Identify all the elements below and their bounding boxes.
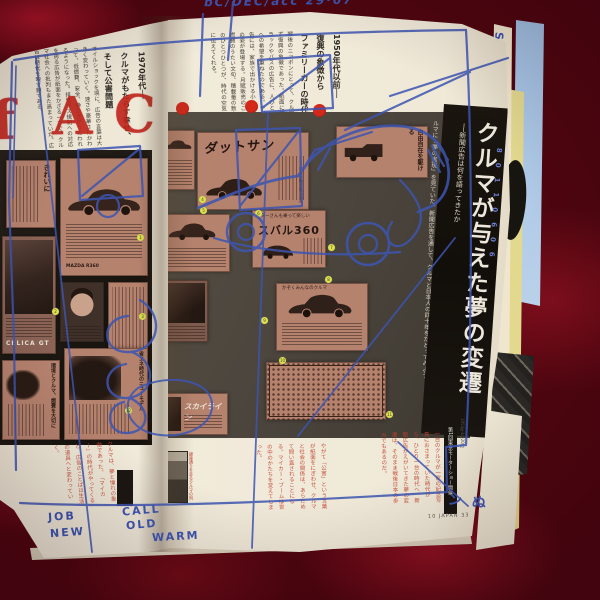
yellow-dot: 4 (199, 196, 206, 203)
mid-bottom-red-text: やがて「公害」という言葉が紙面をにぎわせ、クルマと社会の関係は、あらためて問い直… (195, 443, 328, 511)
yellow-dot: 9 (261, 317, 268, 324)
dot-number: 8 (327, 277, 330, 282)
ad-photo-area (5, 240, 53, 314)
ad-datsun-maker: 日産自動車株式会社 (298, 167, 304, 207)
ad-eco-left: 環境とクルマ、燃費を大切に (2, 360, 60, 440)
ad-subaru-lead: スターさんも乗って楽しい (256, 213, 310, 219)
ad-text-lines (163, 326, 205, 339)
yellow-dot: 2 (52, 308, 59, 315)
black-tab (117, 470, 133, 506)
handwritten-word-new: NEW (50, 525, 86, 540)
ad-kirei: きれいに (6, 160, 56, 228)
top-margin-note: bC/DEC/acc 29·07 (204, 0, 354, 9)
red-stamp-dot (176, 102, 189, 115)
red-stamp-dot (245, 100, 258, 113)
yellow-dot: 7 (328, 244, 335, 251)
red-stamp-dot (313, 104, 326, 117)
ad-kirei-title: きれいに (42, 164, 52, 192)
ad-text-lines (69, 404, 129, 434)
dot-number: 10 (280, 358, 285, 363)
right-bottom-red-text: 一台のクルマが一家の記念写真におさまっていた時代から、ひとり一台の時代へ。新聞広… (337, 431, 442, 507)
ad-text-lines (164, 248, 226, 268)
dot-number: 6 (257, 211, 260, 216)
left-clippings-panel: きれいに MAZDA R360 CELICA GT 環境とクルマ、燃費を大切に (0, 150, 152, 445)
yellow-dot: 10 (279, 357, 286, 364)
ad-text-lines (10, 166, 38, 222)
stencil-letter-a: A (51, 86, 92, 148)
ad-mazda-label: MAZDA R360 (66, 264, 99, 269)
ad-text-lines (66, 224, 142, 260)
stencil-letter-f: f (0, 88, 16, 153)
ad-eco-headline: 環境とクルマ、燃費を大切に (50, 363, 57, 435)
ad-mazda: MAZDA R360 (60, 158, 148, 276)
ad-eco-headline-b: 省エネ時代のニューモデル (138, 351, 145, 435)
yellow-dot: 6 (255, 210, 262, 217)
date-note: 1954年4月20日 (459, 418, 465, 464)
yellow-dot: 3 (139, 313, 146, 320)
ad-jiyu: 自由自在を駆ける (336, 126, 428, 178)
ad-eco-right: 省エネ時代のニューモデル (64, 348, 148, 440)
dot-number: 2 (54, 309, 57, 314)
ad-text-lines (302, 238, 322, 264)
dot-number: 4 (201, 197, 204, 202)
ad-datsun-title: ダットサン (204, 134, 276, 157)
yellow-dot: 1 (137, 234, 144, 241)
truck-illustration (342, 140, 388, 164)
ad-subaru-name: スバル360 (258, 222, 320, 238)
dot-number: 9 (263, 318, 266, 323)
handwritten-word-old: OLD (125, 517, 158, 533)
car-illustration (284, 291, 356, 319)
corner-char: ン (447, 489, 466, 511)
ad-photo-blob (69, 356, 121, 400)
dot-number: 3 (141, 314, 144, 319)
ad-text-lines (184, 415, 222, 429)
ad-celica-label: CELICA GT (6, 340, 50, 347)
yellow-dot: 5 (200, 207, 207, 214)
ad-text-lines (282, 323, 362, 347)
ad-celica: CELICA GT (2, 236, 56, 354)
dot-number: 11 (387, 412, 392, 417)
yellow-dot: 11 (386, 411, 393, 418)
subaru-car-illustration (260, 242, 296, 260)
ad-photo-blob (6, 370, 40, 400)
ad-sedan: かぞくみんなのクルマ (276, 283, 368, 351)
dot-number: 5 (202, 208, 205, 213)
dot-number: 12 (126, 408, 131, 413)
dot-number: 7 (330, 245, 333, 250)
stencil-letter-c: C (113, 83, 156, 145)
ad-subaru: スターさんも乗って楽しい スバル360 (252, 210, 326, 268)
car-illustration (64, 184, 144, 218)
page-footer: 10 JAPAN 33 (428, 512, 470, 519)
ad-text-lines (63, 326, 101, 339)
ad-cartoon (266, 362, 386, 420)
car-illustration (203, 174, 265, 202)
handwritten-word-job: JOB (48, 509, 76, 523)
yellow-dot: 8 (325, 276, 332, 283)
ad-text-lines (6, 404, 44, 436)
car-illustration (166, 220, 218, 242)
ad-woman-portrait (60, 282, 104, 342)
ad-cartoon-frame (269, 365, 383, 417)
ad-datsun: ダットサン 日産自動車株式会社 (197, 132, 309, 210)
yellow-dot: 12 (125, 407, 132, 414)
left-bottom-red-text: クルマは、夢と憧れの象徴であった。「マイカー」の時代がやってくると、広告のことば… (22, 441, 118, 509)
handwritten-word-warm: WARM (152, 529, 200, 544)
ad-photo-area (163, 283, 205, 323)
dot-number: 1 (139, 235, 142, 240)
ad-mid-left (160, 214, 230, 272)
ad-text-lines (6, 318, 52, 338)
corner-char: ぬ (471, 491, 488, 512)
photo-scene: { "scene": { "description": "open magazi… (0, 0, 600, 600)
street-photo-caption: 銀座通りを走るクルマの列 (188, 452, 194, 502)
